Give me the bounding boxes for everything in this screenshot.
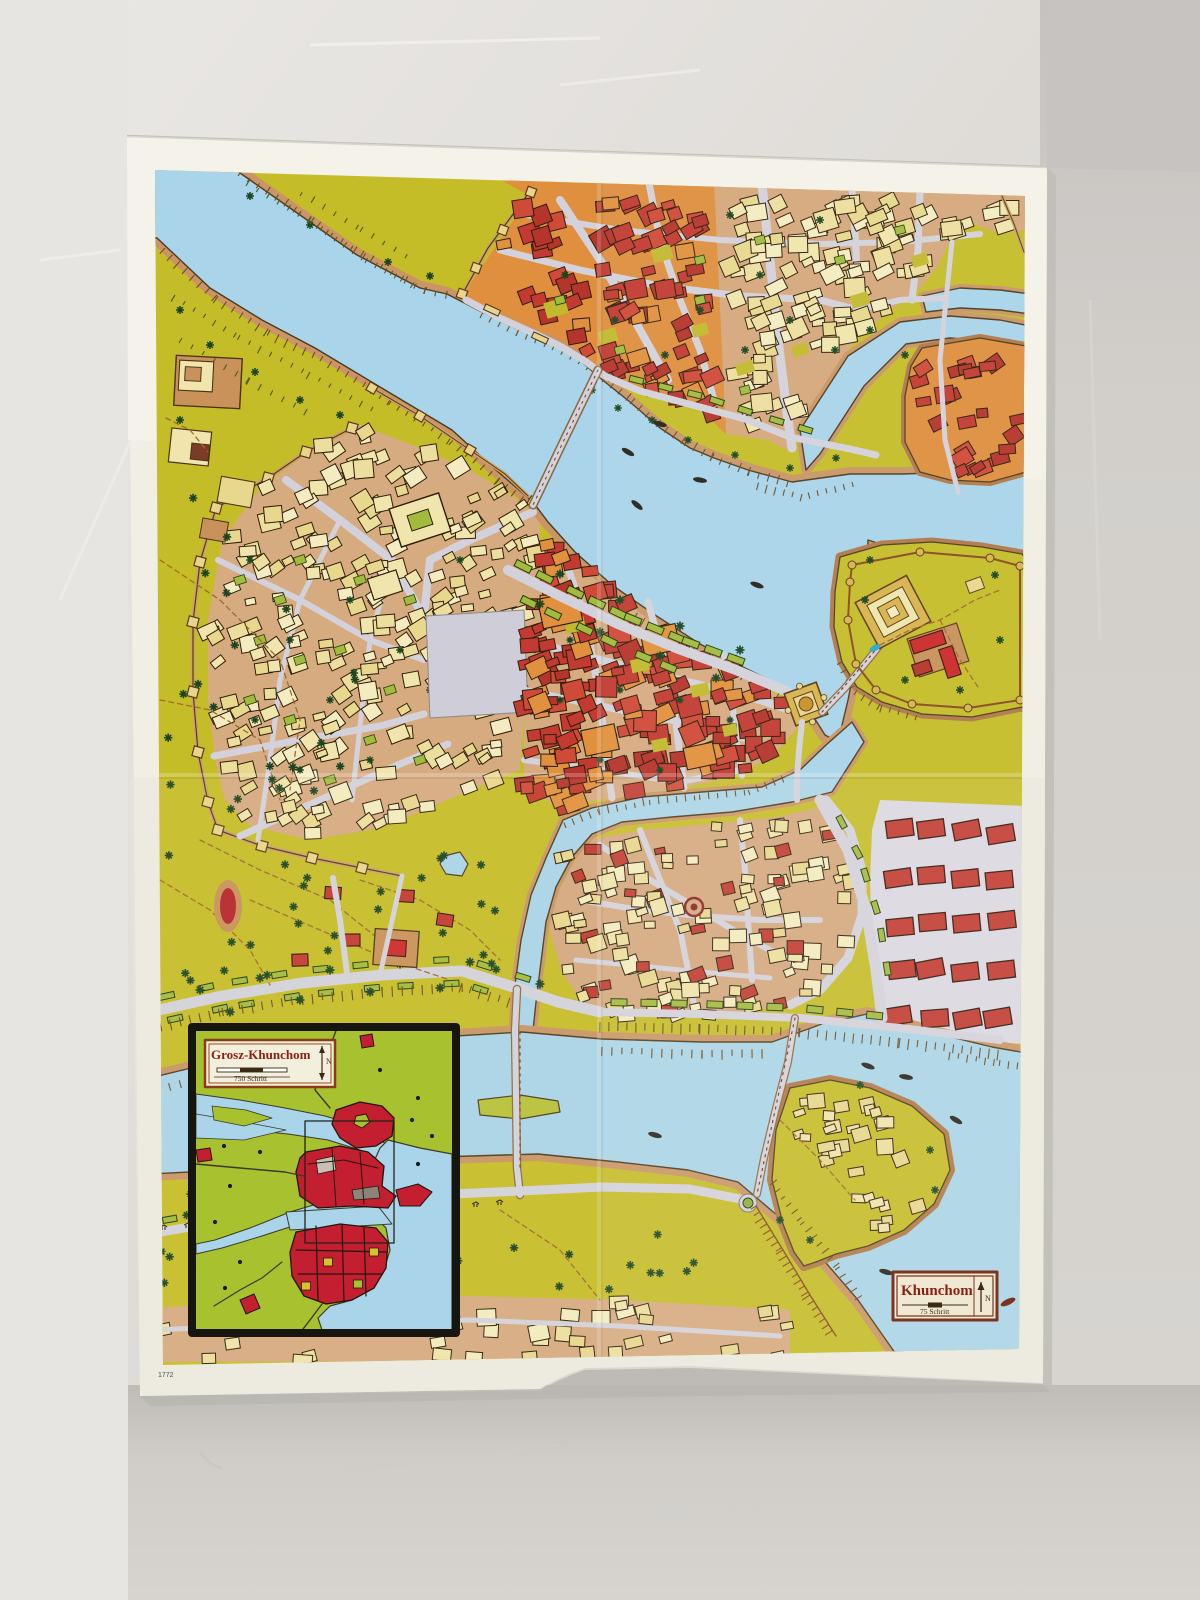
svg-text:N: N [985, 1294, 991, 1303]
svg-text:Khunchom: Khunchom [901, 1283, 973, 1299]
svg-text:1772: 1772 [158, 1372, 174, 1379]
svg-text:N: N [326, 1057, 332, 1066]
svg-text:75 Schritt: 75 Schritt [920, 1307, 950, 1316]
svg-text:Grosz-Khunchom: Grosz-Khunchom [211, 1047, 311, 1062]
svg-text:750 Schritt: 750 Schritt [234, 1074, 268, 1083]
